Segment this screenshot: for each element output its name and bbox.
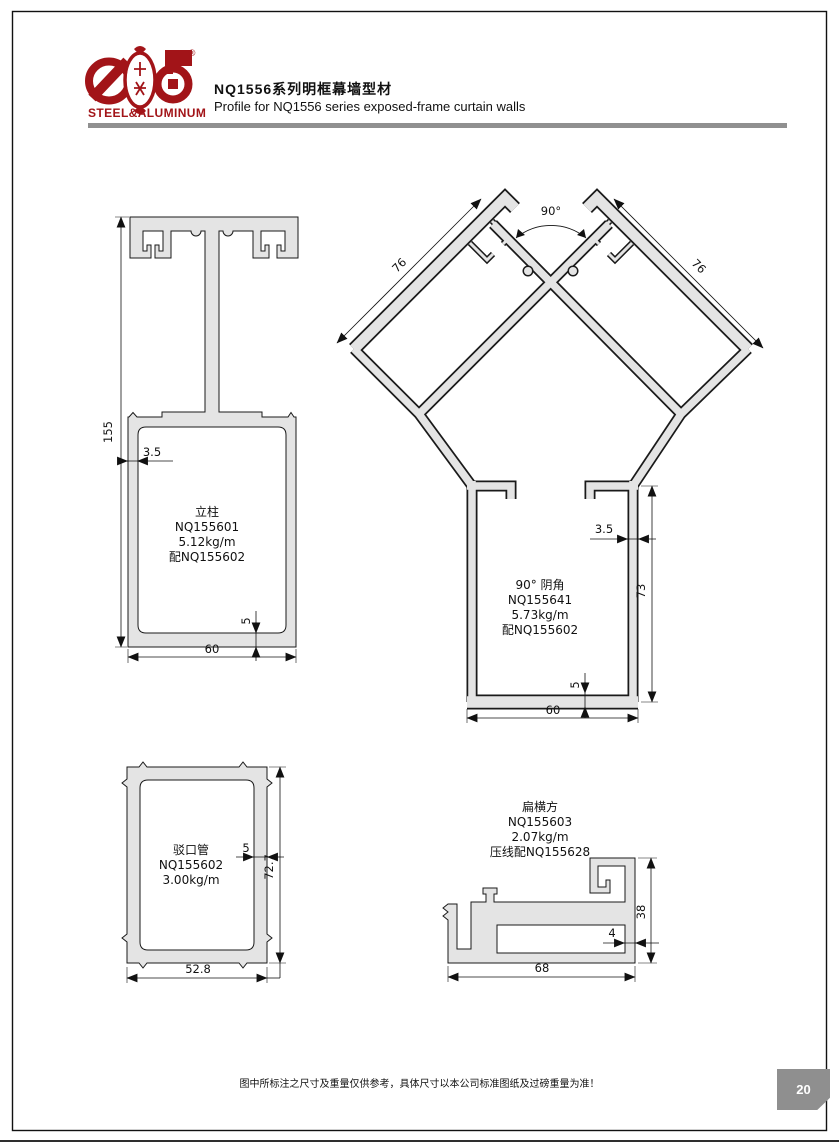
corner-drawing: 90° 76 76 3.5 73 5 60 90° 阴角 NQ155641 5.… (337, 198, 763, 723)
transom-dim-wall: 4 (608, 926, 615, 940)
tube-dim-width: 52.8 (185, 962, 211, 976)
corner-part-weight: 5.73kg/m (511, 608, 568, 622)
mullion-dim-width: 60 (205, 642, 220, 656)
tube-drawing: 72.7 5 52.8 驳口管 NQ155602 3.00kg/m (122, 762, 286, 983)
tube-part-weight: 3.00kg/m (162, 873, 219, 887)
corner-labels: 90° 阴角 NQ155641 5.73kg/m 配NQ155602 (502, 578, 578, 637)
mullion-labels: 立柱 NQ155601 5.12kg/m 配NQ155602 (169, 504, 245, 564)
logo-mark-icon (89, 46, 192, 114)
catalog-page: ® 155 3.5 5 60 立柱 (0, 0, 839, 1146)
corner-dim-arm-left: 76 (389, 255, 409, 275)
corner-dim-wall: 3.5 (595, 522, 613, 536)
corner-part-code: NQ155641 (508, 593, 572, 607)
corner-dim-side: 73 (634, 584, 648, 599)
page-title-cn: NQ1556系列明框幕墙型材 (214, 79, 392, 99)
corner-dim-arm-right: 76 (689, 256, 709, 276)
registered-mark: ® (188, 49, 197, 59)
corner-dim-bottom-wall: 5 (568, 681, 582, 688)
transom-profile-shape (443, 858, 635, 963)
transom-part-weight: 2.07kg/m (511, 830, 568, 844)
mullion-dim-wall: 3.5 (143, 445, 161, 459)
mullion-part-weight: 5.12kg/m (178, 535, 235, 549)
footer-disclaimer: 图中所标注之尺寸及重量仅供参考，具体尺寸以本公司标准图纸及过磅重量为准！ (0, 1075, 839, 1090)
tube-part-name: 驳口管 (173, 842, 209, 857)
mullion-dim-bottom-wall: 5 (239, 617, 253, 624)
page-title-en: Profile for NQ1556 series exposed-frame … (214, 99, 525, 114)
page-number: 20 (796, 1082, 810, 1097)
page-number-badge: 20 (777, 1069, 830, 1110)
transom-labels: 扁横方 NQ155603 2.07kg/m 压线配NQ155628 (490, 799, 590, 859)
logo-company-name: STEEL&ALUMINUM (88, 106, 206, 120)
transom-part-pair: 压线配NQ155628 (490, 845, 590, 859)
transom-dim-height: 38 (634, 905, 648, 920)
transom-drawing: 38 4 68 扁横方 NQ155603 2.07kg/m 压线配NQ15562… (443, 799, 659, 982)
header-divider (88, 123, 787, 128)
transom-part-name: 扁横方 (522, 799, 558, 814)
page-frame (0, 12, 839, 1142)
drawing-canvas: ® 155 3.5 5 60 立柱 (0, 0, 839, 1146)
mullion-drawing: 155 3.5 5 60 立柱 NQ155601 5.12kg/m 配NQ155… (101, 217, 298, 663)
corner-part-pair: 配NQ155602 (502, 623, 578, 637)
transom-dim-width: 68 (535, 961, 550, 975)
tube-dim-height: 72.7 (262, 854, 276, 880)
mullion-profile-shape (128, 217, 298, 647)
corner-dim-angle: 90° (541, 204, 561, 218)
mullion-part-pair: 配NQ155602 (169, 550, 245, 564)
company-logo: ® (89, 46, 197, 114)
transom-part-code: NQ155603 (508, 815, 572, 829)
tube-labels: 驳口管 NQ155602 3.00kg/m (159, 842, 223, 887)
mullion-part-name: 立柱 (195, 504, 219, 519)
corner-dim-width: 60 (546, 703, 561, 717)
tube-part-code: NQ155602 (159, 858, 223, 872)
tube-dim-wall: 5 (242, 841, 249, 855)
mullion-part-code: NQ155601 (175, 520, 239, 534)
corner-part-name: 90° 阴角 (515, 578, 564, 592)
mullion-dim-height: 155 (101, 421, 115, 443)
